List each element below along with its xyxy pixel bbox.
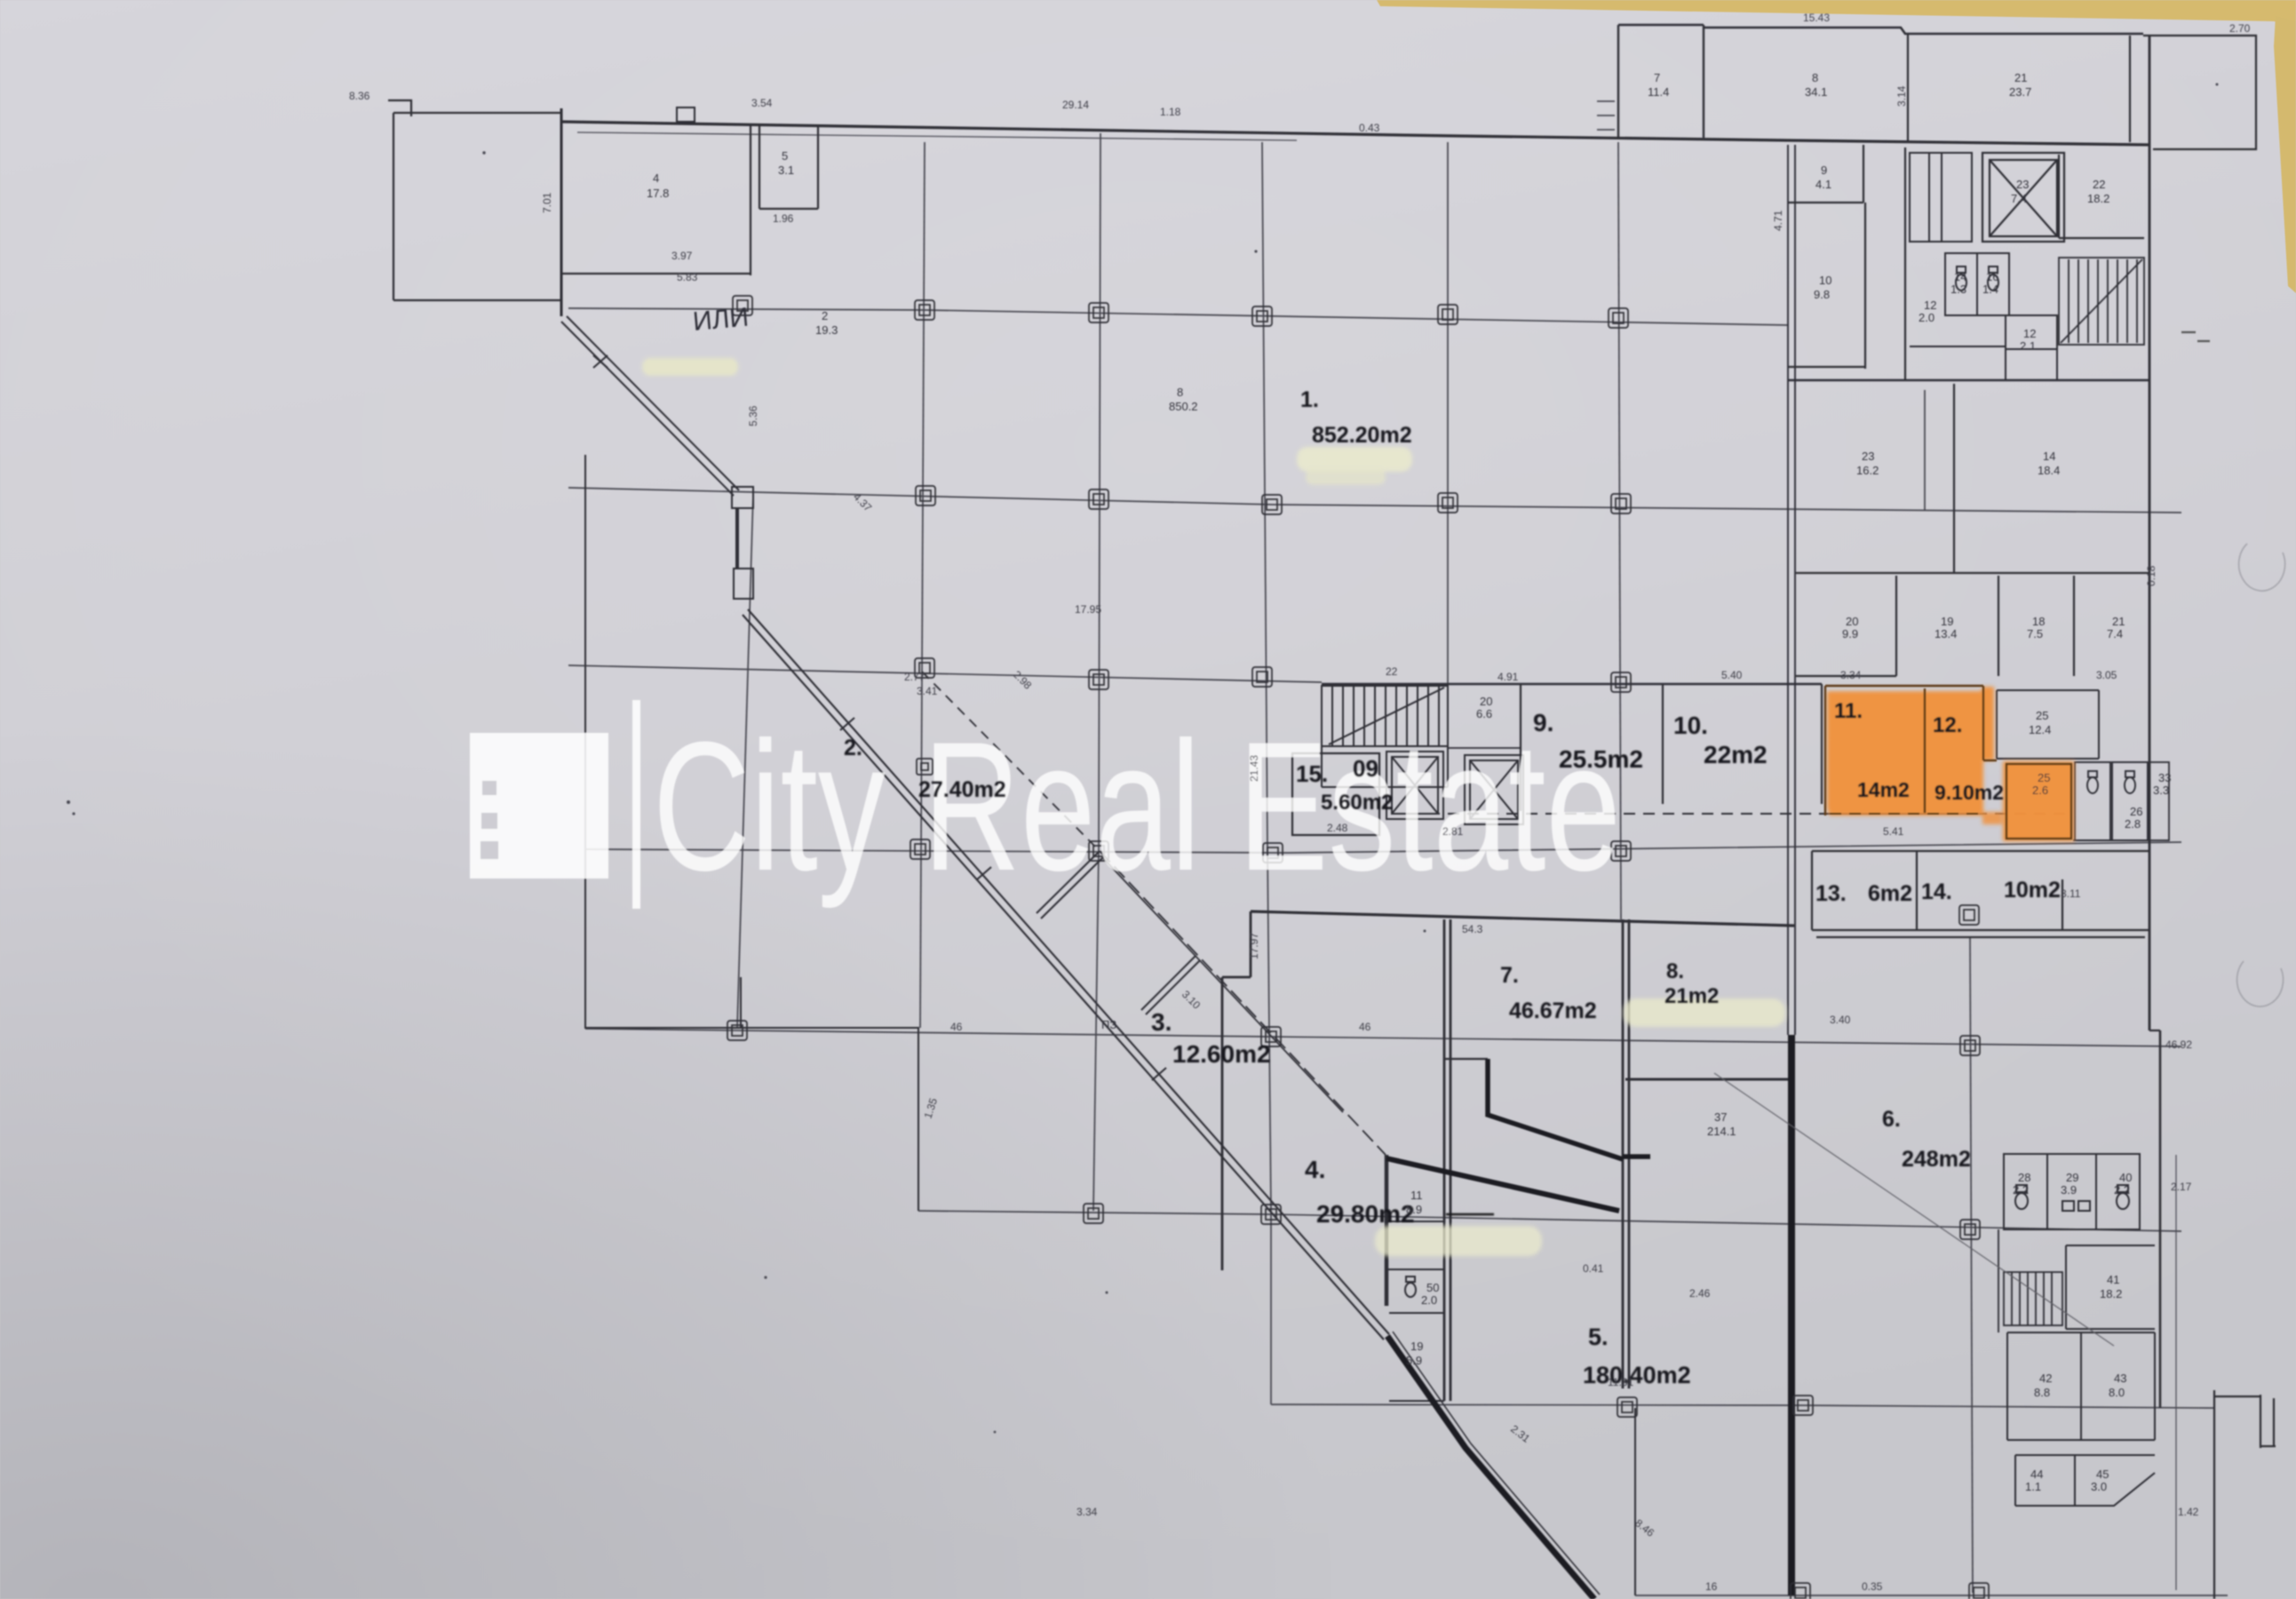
svg-text:37: 37 (1714, 1110, 1727, 1124)
svg-text:4.1: 4.1 (1815, 178, 1831, 191)
svg-text:18.4: 18.4 (2038, 464, 2060, 477)
svg-text:29.14: 29.14 (1062, 99, 1089, 111)
svg-text:12.: 12. (1933, 713, 1962, 737)
svg-text:9.8: 9.8 (1814, 288, 1830, 301)
svg-text:2.17: 2.17 (2171, 1181, 2192, 1193)
svg-text:33: 33 (2158, 771, 2171, 784)
svg-text:28: 28 (2018, 1171, 2030, 1184)
svg-text:12.60m2: 12.60m2 (1172, 1040, 1271, 1068)
svg-text:4.: 4. (1305, 1156, 1325, 1183)
svg-text:11.: 11. (1834, 699, 1863, 723)
svg-text:3.1: 3.1 (778, 163, 794, 177)
svg-text:0.18: 0.18 (2145, 565, 2157, 586)
svg-text:7.5: 7.5 (2027, 627, 2043, 640)
svg-text:34.1: 34.1 (1805, 85, 1827, 99)
svg-text:23.7: 23.7 (2009, 85, 2031, 99)
svg-text:41: 41 (2107, 1273, 2119, 1286)
svg-text:6.: 6. (1882, 1107, 1901, 1132)
svg-text:5.40: 5.40 (1721, 669, 1743, 681)
svg-text:5.36: 5.36 (747, 405, 759, 426)
svg-text:17.95: 17.95 (1075, 603, 1101, 616)
svg-text:0.41: 0.41 (1583, 1262, 1604, 1275)
svg-text:5.60m2: 5.60m2 (1321, 791, 1393, 815)
svg-text:3.14: 3.14 (1895, 85, 1908, 107)
svg-text:9: 9 (1821, 163, 1827, 177)
svg-text:3.0: 3.0 (2091, 1480, 2107, 1493)
svg-text:1.1: 1.1 (2025, 1480, 2041, 1493)
svg-text:3.34: 3.34 (1076, 1506, 1098, 1518)
svg-text:ПЗ: ПЗ (1101, 1018, 1116, 1031)
svg-text:26: 26 (2130, 805, 2142, 818)
svg-text:16: 16 (1986, 270, 1998, 283)
svg-text:2.2: 2.2 (2013, 1183, 2029, 1197)
svg-text:25.5m2: 25.5m2 (1559, 745, 1643, 773)
svg-text:0.35: 0.35 (1862, 1580, 1883, 1593)
svg-text:5: 5 (782, 149, 788, 163)
svg-text:46: 46 (1359, 1021, 1371, 1033)
svg-text:3.34: 3.34 (1840, 669, 1862, 681)
svg-text:3.9: 3.9 (2061, 1183, 2077, 1197)
svg-text:23: 23 (1862, 449, 1874, 463)
svg-text:2.2: 2.2 (2114, 1183, 2130, 1197)
svg-text:20: 20 (1846, 615, 1858, 628)
svg-text:1.4: 1.4 (1982, 282, 1998, 296)
svg-text:50: 50 (1426, 1281, 1439, 1294)
svg-text:43: 43 (2114, 1372, 2126, 1385)
svg-text:City Real Estate: City Real Estate (653, 704, 1621, 909)
svg-text:7: 7 (1654, 71, 1660, 84)
svg-text:13.: 13. (1815, 881, 1847, 906)
svg-text:25: 25 (2038, 771, 2050, 784)
svg-text:13.4: 13.4 (1935, 627, 1957, 640)
svg-text:3.41: 3.41 (917, 685, 938, 697)
svg-text:3.97: 3.97 (671, 250, 693, 262)
svg-text:46: 46 (950, 1021, 963, 1033)
svg-text:11.4: 11.4 (1648, 85, 1669, 99)
svg-text:4.71: 4.71 (1772, 210, 1784, 231)
svg-text:19.3: 19.3 (815, 323, 838, 337)
svg-text:1.42: 1.42 (2178, 1506, 2199, 1518)
svg-text:15.43: 15.43 (1803, 12, 1830, 24)
svg-text:2.70: 2.70 (2229, 22, 2251, 35)
svg-text:8.0: 8.0 (2109, 1386, 2125, 1399)
svg-text:3.: 3. (1151, 1008, 1172, 1036)
svg-text:5.83: 5.83 (677, 271, 698, 283)
svg-text:29: 29 (2066, 1171, 2078, 1184)
svg-text:12: 12 (2023, 327, 2036, 340)
svg-text:21.43: 21.43 (1248, 755, 1260, 782)
svg-text:1.96: 1.96 (773, 212, 794, 225)
svg-text:14.: 14. (1921, 879, 1952, 904)
svg-text:5.41: 5.41 (1883, 825, 1904, 838)
svg-text:22: 22 (1386, 665, 1398, 678)
svg-text:4: 4 (653, 171, 659, 185)
svg-text:9.9: 9.9 (1842, 627, 1858, 640)
svg-text:09: 09 (1353, 755, 1378, 782)
svg-text:2.77: 2.77 (904, 671, 926, 683)
svg-text:6m2: 6m2 (1868, 881, 1912, 906)
svg-text:16: 16 (1705, 1580, 1718, 1593)
svg-text:21: 21 (2014, 71, 2027, 84)
svg-text:248m2: 248m2 (1902, 1147, 1971, 1172)
svg-text:11.31: 11.31 (1608, 1376, 1633, 1388)
svg-text:27.40m2: 27.40m2 (918, 777, 1006, 802)
svg-text:40: 40 (2119, 1171, 2132, 1184)
svg-text:180.40m2: 180.40m2 (1583, 1362, 1691, 1388)
svg-text:1.: 1. (1300, 387, 1319, 412)
svg-text:3.05: 3.05 (2096, 669, 2117, 681)
svg-text:14m2: 14m2 (1857, 778, 1910, 801)
svg-text:12.4: 12.4 (2029, 723, 2051, 736)
svg-text:8.9: 8.9 (1406, 1203, 1422, 1216)
svg-text:8.: 8. (1666, 959, 1684, 983)
svg-text:8.36: 8.36 (349, 90, 370, 102)
svg-text:42: 42 (2039, 1372, 2052, 1385)
svg-text:44: 44 (2030, 1468, 2043, 1481)
svg-text:8: 8 (1812, 71, 1818, 84)
svg-text:20: 20 (1480, 695, 1492, 708)
svg-text:7.: 7. (1500, 963, 1519, 988)
svg-text:18.2: 18.2 (2100, 1287, 2122, 1301)
svg-text:214.1: 214.1 (1707, 1125, 1736, 1138)
svg-text:3.40: 3.40 (1830, 1014, 1851, 1026)
svg-text:25: 25 (2036, 709, 2048, 722)
svg-text:16.2: 16.2 (1856, 464, 1879, 477)
svg-text:21: 21 (2112, 615, 2125, 628)
svg-text:2.81: 2.81 (1442, 825, 1464, 838)
svg-text:2: 2 (822, 309, 828, 322)
svg-text:8.8: 8.8 (2034, 1386, 2050, 1399)
svg-text:2.: 2. (844, 736, 862, 760)
svg-text:14: 14 (2043, 449, 2055, 463)
svg-text:1.3: 1.3 (1950, 282, 1966, 296)
svg-text:22: 22 (2093, 178, 2105, 191)
svg-text:6.6: 6.6 (1476, 707, 1492, 720)
svg-text:15.: 15. (1296, 760, 1328, 787)
svg-text:1.18: 1.18 (1160, 106, 1181, 118)
svg-text:2.46: 2.46 (1689, 1287, 1711, 1300)
svg-text:7.01: 7.01 (541, 192, 553, 213)
svg-text:2.8: 2.8 (2125, 817, 2141, 831)
svg-text:9.: 9. (1533, 709, 1553, 736)
svg-text:46.92: 46.92 (2165, 1038, 2192, 1051)
svg-text:2.1: 2.1 (2020, 339, 2036, 353)
svg-text:54.3: 54.3 (1462, 923, 1483, 935)
svg-text:5.9: 5.9 (1406, 1354, 1422, 1367)
svg-text:7.4: 7.4 (2107, 627, 2123, 640)
svg-text:10m2: 10m2 (2004, 878, 2061, 903)
svg-text:10: 10 (1819, 274, 1831, 287)
svg-text:5.: 5. (1588, 1324, 1609, 1350)
svg-text:4.91: 4.91 (1498, 671, 1519, 683)
svg-text:14: 14 (1954, 270, 1966, 283)
svg-text:2.48: 2.48 (1327, 822, 1348, 834)
svg-text:18.2: 18.2 (2087, 192, 2109, 205)
svg-text:9.10m2: 9.10m2 (1935, 781, 2004, 804)
svg-text:12: 12 (1924, 298, 1936, 312)
svg-text:3.11: 3.11 (2061, 887, 2081, 900)
svg-text:850.2: 850.2 (1169, 400, 1198, 413)
svg-text:852.20m2: 852.20m2 (1312, 423, 1412, 448)
svg-text:8: 8 (1177, 386, 1183, 399)
svg-text:19: 19 (1410, 1340, 1423, 1353)
svg-text:18: 18 (2032, 615, 2045, 628)
svg-text:45: 45 (2096, 1468, 2109, 1481)
svg-text:3.3: 3.3 (2153, 784, 2169, 797)
svg-text:17.97: 17.97 (1248, 933, 1260, 959)
svg-text:2.0: 2.0 (1421, 1293, 1437, 1307)
svg-text:21m2: 21m2 (1664, 984, 1719, 1008)
svg-text:46.67m2: 46.67m2 (1509, 998, 1597, 1023)
svg-text:3.54: 3.54 (751, 97, 773, 109)
svg-text:19: 19 (1941, 615, 1953, 628)
svg-text:7.4: 7.4 (2011, 192, 2027, 205)
svg-text:23: 23 (2016, 178, 2029, 191)
svg-text:22m2: 22m2 (1704, 741, 1768, 768)
svg-text:10.: 10. (1673, 712, 1708, 739)
svg-text:29.80m2: 29.80m2 (1316, 1200, 1415, 1228)
svg-text:2.0: 2.0 (1919, 311, 1935, 324)
svg-text:0.43: 0.43 (1359, 122, 1380, 134)
svg-text:2.6: 2.6 (2032, 784, 2048, 797)
svg-text:17.8: 17.8 (647, 187, 669, 200)
svg-text:11: 11 (1410, 1189, 1423, 1202)
svg-text:ИЛИ: ИЛИ (692, 303, 750, 337)
